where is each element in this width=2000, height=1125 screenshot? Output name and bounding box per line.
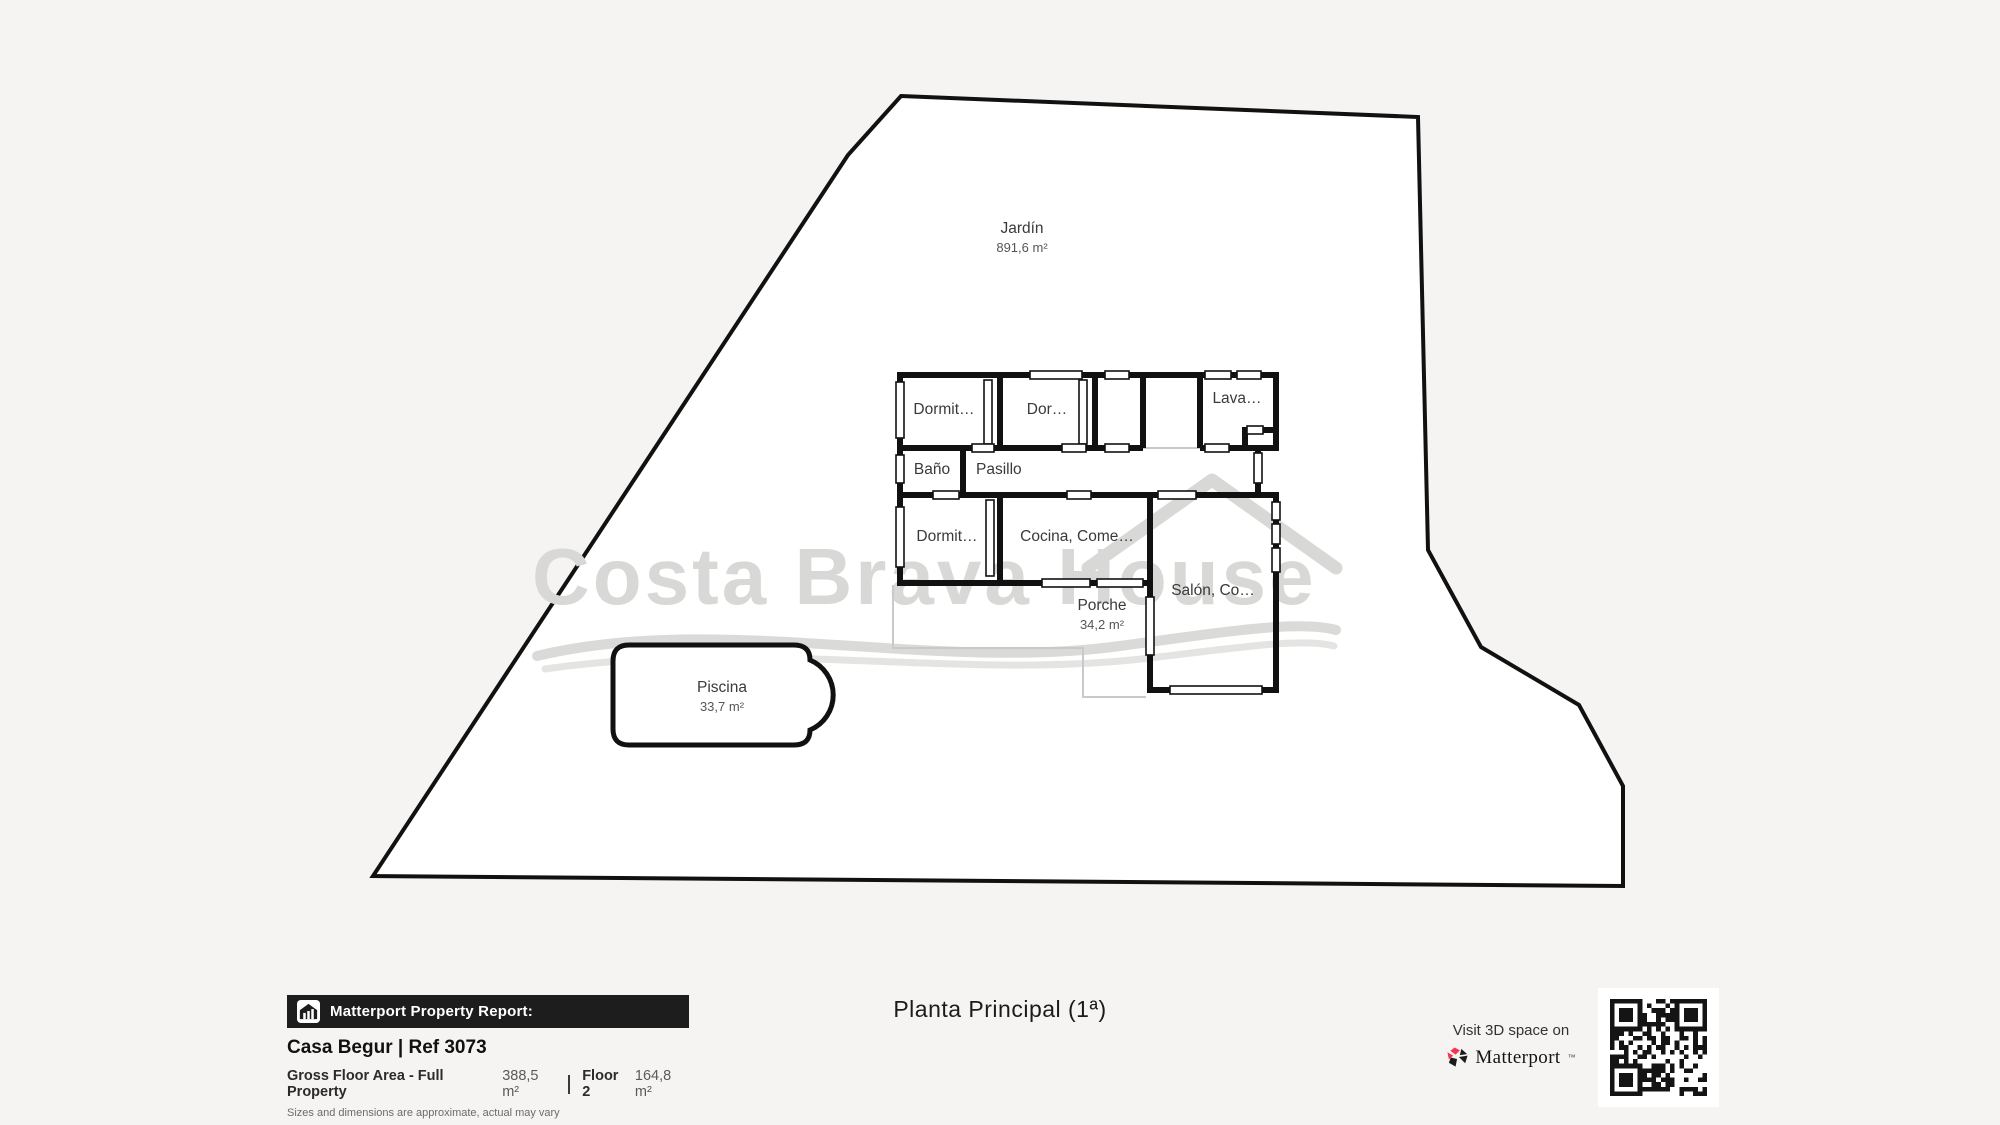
property-title: Casa Begur | Ref 3073 [287,1037,689,1059]
gross-area-label: Gross Floor Area - Full Property [287,1068,495,1100]
label-jardin: Jardín [1000,220,1043,237]
disclaimer-text: Sizes and dimensions are approximate, ac… [287,1107,689,1119]
matterport-wordmark: Matterport [1475,1047,1560,1069]
label-pasillo: Pasillo [976,461,1022,478]
label-dormitorio-top2: Dor… [1027,401,1067,418]
label-piscina: Piscina [697,679,747,696]
label-salon: Salón, Co… [1171,582,1255,599]
house-bars-icon [297,1000,320,1023]
report-header-label: Matterport Property Report: [330,1003,533,1020]
floor-value: 164,8 m² [635,1068,689,1100]
watermark-text: Costa Brava House [532,532,1317,621]
report-info-box: Matterport Property Report: Casa Begur |… [287,995,689,1119]
label-piscina-area: 33,7 m² [700,699,745,714]
label-dormitorio-top: Dormit… [913,401,974,418]
visit-3d-label: Visit 3D space on [1428,1022,1594,1039]
stats-divider [568,1075,570,1094]
label-cocina: Cocina, Come… [1020,528,1134,545]
label-porche: Porche [1077,597,1126,614]
label-porche-area: 34,2 m² [1080,617,1125,632]
report-header-bar: Matterport Property Report: [287,995,689,1028]
area-stats-row: Gross Floor Area - Full Property 388,5 m… [287,1068,689,1100]
label-dormitorio-lower: Dormit… [916,528,977,545]
label-jardin-area: 891,6 m² [996,240,1048,255]
matterport-pinwheel-icon [1446,1046,1469,1069]
visit-3d-block: Visit 3D space on Matterport™ [1428,1022,1594,1069]
matterport-trademark: ™ [1568,1053,1576,1062]
floor-plan-canvas: Costa Brava House [0,0,2000,960]
gross-area-value: 388,5 m² [502,1068,556,1100]
label-bano: Baño [914,461,950,478]
label-lavadero: Lava… [1212,390,1261,407]
floor-title: Planta Principal (1ª) [700,996,1300,1023]
floor-label: Floor 2 [582,1068,628,1100]
qr-code [1610,999,1707,1096]
property-report-page: Costa Brava House [0,0,2000,1125]
qr-code-card [1598,988,1719,1107]
property-boundary [373,96,1623,886]
matterport-logo: Matterport™ [1428,1046,1594,1069]
